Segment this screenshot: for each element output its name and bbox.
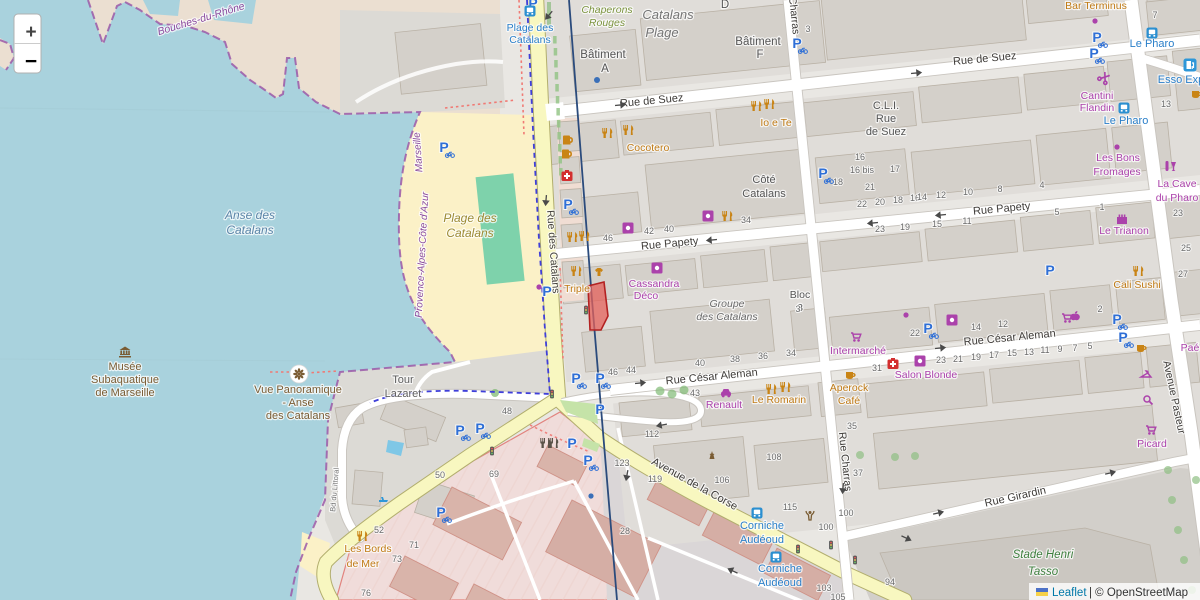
svg-text:P: P — [1089, 45, 1098, 61]
svg-text:16 bis: 16 bis — [850, 165, 875, 175]
svg-text:Catalans: Catalans — [509, 34, 550, 46]
svg-text:P: P — [1112, 311, 1121, 327]
svg-text:21: 21 — [953, 354, 963, 364]
svg-text:Aperock: Aperock — [830, 382, 869, 394]
svg-text:Renault: Renault — [706, 399, 742, 411]
svg-text:18: 18 — [893, 195, 903, 205]
svg-text:P: P — [583, 452, 592, 468]
svg-text:P: P — [439, 139, 448, 155]
svg-text:25: 25 — [1181, 243, 1191, 253]
svg-text:Paé: Paé — [1181, 342, 1200, 354]
svg-text:F: F — [756, 49, 763, 61]
svg-text:34: 34 — [741, 215, 751, 225]
svg-text:Esso Exp: Esso Exp — [1158, 74, 1200, 86]
svg-text:Plage: Plage — [645, 25, 678, 40]
svg-text:48: 48 — [502, 406, 512, 416]
svg-text:P: P — [818, 165, 827, 181]
svg-text:37: 37 — [853, 468, 863, 478]
svg-text:Café: Café — [838, 395, 860, 407]
svg-text:15: 15 — [932, 219, 942, 229]
svg-text:Tour: Tour — [392, 374, 414, 386]
svg-text:7: 7 — [1152, 10, 1157, 20]
svg-text:19: 19 — [900, 222, 910, 232]
svg-text:105: 105 — [830, 592, 845, 600]
svg-text:50: 50 — [435, 470, 445, 480]
svg-text:11: 11 — [962, 216, 971, 226]
svg-text:Cassandra: Cassandra — [629, 278, 680, 290]
svg-text:76: 76 — [361, 588, 371, 598]
svg-text:10: 10 — [963, 187, 973, 197]
svg-text:38: 38 — [730, 354, 740, 364]
svg-text:P: P — [792, 35, 801, 51]
svg-text:123: 123 — [614, 458, 629, 468]
svg-text:P: P — [1118, 329, 1127, 345]
svg-text:40: 40 — [664, 224, 674, 234]
svg-text:35: 35 — [847, 421, 857, 431]
svg-text:P: P — [567, 435, 576, 451]
svg-text:P: P — [455, 422, 464, 438]
svg-text:16: 16 — [855, 152, 865, 162]
svg-text:15: 15 — [1007, 348, 1017, 358]
svg-text:Picard: Picard — [1137, 438, 1167, 450]
svg-text:2: 2 — [1097, 304, 1102, 314]
svg-text:22: 22 — [857, 199, 867, 209]
svg-text:Chaperons: Chaperons — [581, 4, 633, 16]
svg-text:46: 46 — [608, 367, 618, 377]
svg-text:P: P — [1092, 29, 1101, 45]
svg-text:de Suez: de Suez — [866, 126, 906, 138]
svg-text:100: 100 — [838, 508, 853, 518]
svg-text:43: 43 — [690, 388, 700, 398]
svg-text:P: P — [1045, 262, 1054, 278]
svg-text:40: 40 — [695, 358, 705, 368]
svg-text:17: 17 — [890, 164, 900, 174]
svg-text:52: 52 — [374, 525, 384, 535]
svg-text:Leaflet: Leaflet — [1052, 587, 1087, 599]
svg-text:Triple: Triple — [564, 283, 590, 295]
svg-text:P: P — [542, 283, 551, 299]
svg-text:14: 14 — [917, 192, 927, 202]
svg-text:Les Bords: Les Bords — [344, 543, 391, 555]
svg-text:103: 103 — [816, 583, 831, 593]
svg-text:7: 7 — [1072, 343, 1077, 353]
svg-text:des Catalans: des Catalans — [266, 410, 331, 422]
svg-text:Corniche: Corniche — [758, 563, 802, 575]
svg-text:Plage des: Plage des — [443, 211, 496, 225]
svg-text:Cantini: Cantini — [1081, 90, 1114, 102]
svg-text:23: 23 — [875, 224, 885, 234]
svg-text:+: + — [25, 22, 36, 43]
svg-text:11: 11 — [1040, 345, 1049, 355]
svg-text:Rouges: Rouges — [589, 17, 626, 29]
svg-text:C.L.I.: C.L.I. — [873, 100, 899, 112]
svg-text:112: 112 — [645, 429, 659, 439]
svg-text:31: 31 — [872, 363, 882, 373]
svg-text:3: 3 — [795, 304, 800, 314]
svg-text:du Pharo: du Pharo — [1156, 192, 1199, 204]
svg-text:119: 119 — [648, 474, 662, 484]
svg-text:P: P — [595, 370, 604, 386]
svg-text:17: 17 — [989, 350, 999, 360]
svg-text:14: 14 — [971, 322, 981, 332]
svg-text:100: 100 — [818, 522, 833, 532]
svg-text:Catalans: Catalans — [642, 7, 694, 22]
svg-text:Fromages: Fromages — [1093, 166, 1140, 178]
svg-text:8: 8 — [997, 184, 1002, 194]
svg-text:−: − — [25, 50, 37, 73]
svg-text:36: 36 — [758, 351, 768, 361]
svg-text:Plage des: Plage des — [507, 22, 554, 34]
svg-text:Stade Henri: Stade Henri — [1013, 549, 1074, 561]
svg-text:13: 13 — [1161, 99, 1171, 109]
svg-text:4: 4 — [1039, 180, 1044, 190]
svg-text:46: 46 — [603, 233, 613, 243]
svg-text:20: 20 — [875, 197, 885, 207]
svg-text:Groupe: Groupe — [709, 298, 744, 310]
svg-text:5: 5 — [1087, 341, 1092, 351]
svg-text:94: 94 — [885, 577, 895, 587]
svg-text:Musée: Musée — [108, 361, 141, 373]
svg-text:- Anse: - Anse — [282, 397, 313, 409]
svg-text:de Mer: de Mer — [347, 558, 380, 570]
svg-text:D: D — [721, 0, 729, 11]
svg-text:P: P — [571, 370, 580, 386]
svg-text:P: P — [595, 401, 604, 417]
svg-text:12: 12 — [936, 190, 946, 200]
svg-text:1: 1 — [1099, 202, 1104, 212]
svg-text:9: 9 — [1057, 344, 1062, 354]
svg-text:Io e Te: Io e Te — [760, 117, 791, 129]
svg-text:Bloc: Bloc — [790, 289, 810, 301]
svg-text:Cocotero: Cocotero — [627, 142, 670, 154]
svg-text:Audéoud: Audéoud — [740, 534, 784, 546]
svg-text:Corniche: Corniche — [740, 520, 784, 532]
svg-text:71: 71 — [409, 540, 419, 550]
svg-text:18: 18 — [833, 177, 843, 187]
svg-text:19: 19 — [971, 352, 981, 362]
svg-text:P: P — [475, 420, 484, 436]
svg-text:34: 34 — [786, 348, 796, 358]
svg-text:73: 73 — [392, 554, 402, 564]
svg-text:Bar Terminus: Bar Terminus — [1065, 0, 1127, 12]
svg-text:A: A — [601, 63, 609, 75]
svg-text:des Catalans: des Catalans — [696, 311, 758, 323]
svg-text:Côté: Côté — [752, 174, 775, 186]
svg-text:22: 22 — [910, 328, 920, 338]
svg-text:| © OpenStreetMap: | © OpenStreetMap — [1089, 587, 1188, 599]
svg-text:Bâtiment: Bâtiment — [735, 36, 781, 48]
svg-text:Déco: Déco — [634, 290, 659, 302]
svg-text:13: 13 — [1024, 347, 1034, 357]
svg-text:3: 3 — [805, 24, 810, 34]
svg-text:La Cave: La Cave — [1157, 178, 1196, 190]
svg-text:27: 27 — [1178, 269, 1188, 279]
svg-text:Subaquatique: Subaquatique — [91, 374, 159, 386]
svg-text:69: 69 — [489, 469, 499, 479]
svg-text:Flandin: Flandin — [1080, 102, 1115, 114]
svg-text:Anse des: Anse des — [224, 208, 275, 222]
svg-text:Catalans: Catalans — [226, 223, 273, 237]
svg-text:Salon Blonde: Salon Blonde — [895, 369, 958, 381]
svg-text:P: P — [923, 320, 932, 336]
svg-text:Catalans: Catalans — [446, 226, 493, 240]
svg-text:de Marseille: de Marseille — [95, 387, 154, 399]
svg-text:23: 23 — [1173, 208, 1183, 218]
svg-text:Cali Sushi: Cali Sushi — [1113, 279, 1160, 291]
svg-text:44: 44 — [626, 365, 636, 375]
svg-text:Le Pharo: Le Pharo — [1130, 38, 1175, 50]
svg-text:115: 115 — [783, 502, 797, 512]
svg-text:Vue Panoramique: Vue Panoramique — [254, 384, 342, 396]
svg-text:28: 28 — [620, 526, 630, 536]
svg-text:12: 12 — [998, 319, 1008, 329]
svg-text:108: 108 — [766, 452, 781, 462]
svg-text:P: P — [563, 196, 572, 212]
svg-text:Audéoud: Audéoud — [758, 577, 802, 589]
svg-text:Rue: Rue — [876, 113, 896, 125]
svg-text:106: 106 — [714, 475, 729, 485]
svg-text:23: 23 — [936, 355, 946, 365]
svg-text:Tasso: Tasso — [1028, 566, 1059, 578]
svg-text:42: 42 — [644, 226, 654, 236]
svg-text:Catalans: Catalans — [742, 188, 786, 200]
svg-text:Le Trianon: Le Trianon — [1099, 225, 1149, 237]
svg-text:5: 5 — [1054, 207, 1059, 217]
svg-text:21: 21 — [865, 182, 875, 192]
svg-text:Le Romarin: Le Romarin — [752, 394, 806, 406]
svg-text:Lazaret: Lazaret — [385, 388, 422, 400]
svg-text:Intermarché: Intermarché — [830, 345, 886, 357]
svg-text:Le Pharo: Le Pharo — [1104, 115, 1149, 127]
svg-text:Les Bons: Les Bons — [1096, 152, 1140, 164]
svg-text:Bâtiment: Bâtiment — [580, 49, 626, 61]
svg-text:P: P — [436, 504, 445, 520]
